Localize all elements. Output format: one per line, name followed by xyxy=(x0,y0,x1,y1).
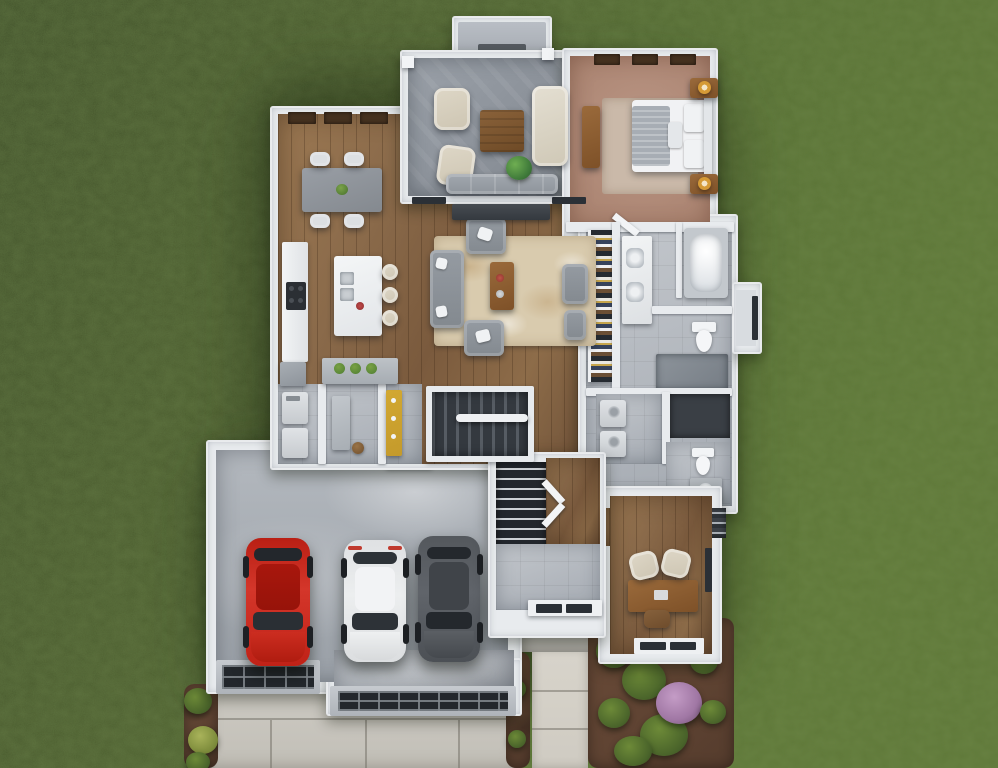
purple-flower-bush xyxy=(656,682,702,724)
car-gray xyxy=(418,536,480,662)
washer-panel xyxy=(286,396,300,401)
office-window xyxy=(640,642,666,650)
table-centerpiece xyxy=(336,184,348,195)
burner xyxy=(289,286,294,291)
car-roof xyxy=(429,562,469,610)
wheel xyxy=(243,626,249,648)
coat-hook xyxy=(391,434,396,439)
wheel xyxy=(477,554,483,575)
wheel xyxy=(243,556,249,578)
vanity-sink xyxy=(626,248,644,268)
car-white xyxy=(344,540,406,662)
wheel xyxy=(415,622,421,643)
vanity-sink xyxy=(626,282,644,302)
car-rear-glass xyxy=(427,547,471,559)
stair-handrail xyxy=(456,414,528,422)
refrigerator xyxy=(280,362,306,386)
basket xyxy=(352,442,364,454)
porch-loveseat xyxy=(532,86,568,166)
storage-closet xyxy=(670,394,730,438)
dining-chair xyxy=(344,152,364,166)
driveway-seam xyxy=(206,718,518,720)
car-taillight xyxy=(348,546,362,550)
garage-door-double xyxy=(338,691,508,711)
bed-accent-pillow xyxy=(668,122,682,148)
porch-wall-window xyxy=(412,197,446,204)
driveway-seam xyxy=(270,720,272,768)
car-rear-glass xyxy=(353,552,397,564)
shrub xyxy=(700,700,726,724)
coffee-table xyxy=(490,262,514,310)
office-side-window xyxy=(705,548,712,592)
car-hood xyxy=(251,632,305,662)
burner xyxy=(298,298,303,303)
toilet-room-wall xyxy=(652,306,732,314)
wheel xyxy=(307,556,313,578)
mudroom-wall xyxy=(378,384,386,464)
shrub xyxy=(614,736,652,766)
porch-coffee-table xyxy=(480,110,524,152)
dresser xyxy=(582,106,600,168)
utility-dryer xyxy=(282,428,308,458)
ottoman xyxy=(564,310,586,340)
porch-wicker-chair xyxy=(434,88,470,130)
dining-window xyxy=(360,112,388,124)
walkway-seam xyxy=(532,690,588,692)
herb-plant xyxy=(366,363,377,374)
porch-wall-window xyxy=(552,197,586,204)
coat-hook xyxy=(391,416,396,421)
herb-plant xyxy=(334,363,345,374)
car-windshield xyxy=(352,613,398,630)
desk-chair xyxy=(644,610,670,628)
car-hood xyxy=(350,632,400,660)
car-windshield xyxy=(426,612,472,629)
dining-window xyxy=(324,112,352,124)
dryer-door xyxy=(608,436,620,448)
office-window xyxy=(670,642,696,650)
coat-closet xyxy=(496,462,546,550)
garage-door-single xyxy=(222,665,314,689)
coffee-table-decor xyxy=(496,290,504,298)
bedroom-window xyxy=(632,54,658,65)
wheel xyxy=(341,624,347,644)
tub-nook-wall xyxy=(676,222,682,298)
bay-window-glass xyxy=(752,296,758,340)
wheel xyxy=(307,626,313,648)
bedroom-window xyxy=(670,54,696,65)
island-sink xyxy=(340,288,354,301)
wheel xyxy=(403,624,409,644)
car-windshield xyxy=(253,612,303,630)
walkway-seam xyxy=(532,728,588,730)
washer-door xyxy=(608,406,620,418)
bed-blanket xyxy=(632,106,670,166)
dining-chair xyxy=(344,214,364,228)
front-door-glass xyxy=(566,604,592,613)
burner xyxy=(298,286,303,291)
shrub xyxy=(508,730,526,748)
mudroom-wall xyxy=(318,384,326,464)
wheel xyxy=(477,622,483,643)
car-taillight xyxy=(388,546,402,550)
shrub xyxy=(598,698,630,728)
floor-plan-render xyxy=(0,0,998,768)
porch-post xyxy=(402,56,414,68)
wheel xyxy=(403,558,409,578)
driveway-seam xyxy=(458,720,460,768)
island-sink xyxy=(340,272,354,285)
car-hood xyxy=(424,631,474,658)
table-lamp xyxy=(698,177,711,190)
foyer-hall-wood xyxy=(546,458,600,548)
wheel xyxy=(341,558,347,578)
car-roof xyxy=(355,567,395,611)
utility-cabinet xyxy=(332,396,350,450)
front-door-glass xyxy=(536,604,562,613)
dining-chair xyxy=(310,152,330,166)
office-floor xyxy=(610,496,712,654)
table-lamp xyxy=(698,81,711,94)
bar-stool xyxy=(382,287,398,303)
stair-treads xyxy=(432,392,528,456)
dining-chair xyxy=(310,214,330,228)
laptop xyxy=(654,590,668,600)
shower xyxy=(656,354,728,390)
headboard xyxy=(704,98,712,174)
shrub xyxy=(188,726,218,754)
tv-console xyxy=(452,204,550,220)
coffee-table-decor xyxy=(496,274,504,282)
burner xyxy=(289,298,294,303)
driveway-seam xyxy=(365,720,367,768)
herb-plant xyxy=(350,363,361,374)
dining-window xyxy=(288,112,316,124)
coat-hook xyxy=(391,398,396,403)
car-red xyxy=(246,538,310,666)
bed-pillow xyxy=(684,104,704,132)
car-rear-glass xyxy=(254,548,302,561)
closet-bath-wall xyxy=(612,222,620,392)
car-roof xyxy=(256,564,300,610)
porch-plant xyxy=(506,156,532,180)
bathtub-basin xyxy=(690,234,722,292)
bar-stool xyxy=(382,264,398,280)
decor-bowl xyxy=(356,302,364,310)
porch-bench-sofa xyxy=(446,174,558,194)
armchair xyxy=(562,264,588,304)
sofa-pillow xyxy=(435,305,448,318)
wheel xyxy=(415,554,421,575)
bar-stool xyxy=(382,310,398,326)
porch-post xyxy=(542,48,554,60)
shrub xyxy=(186,752,210,768)
bedroom-window xyxy=(594,54,620,65)
bed-pillow xyxy=(684,140,704,168)
front-walkway xyxy=(532,644,588,768)
